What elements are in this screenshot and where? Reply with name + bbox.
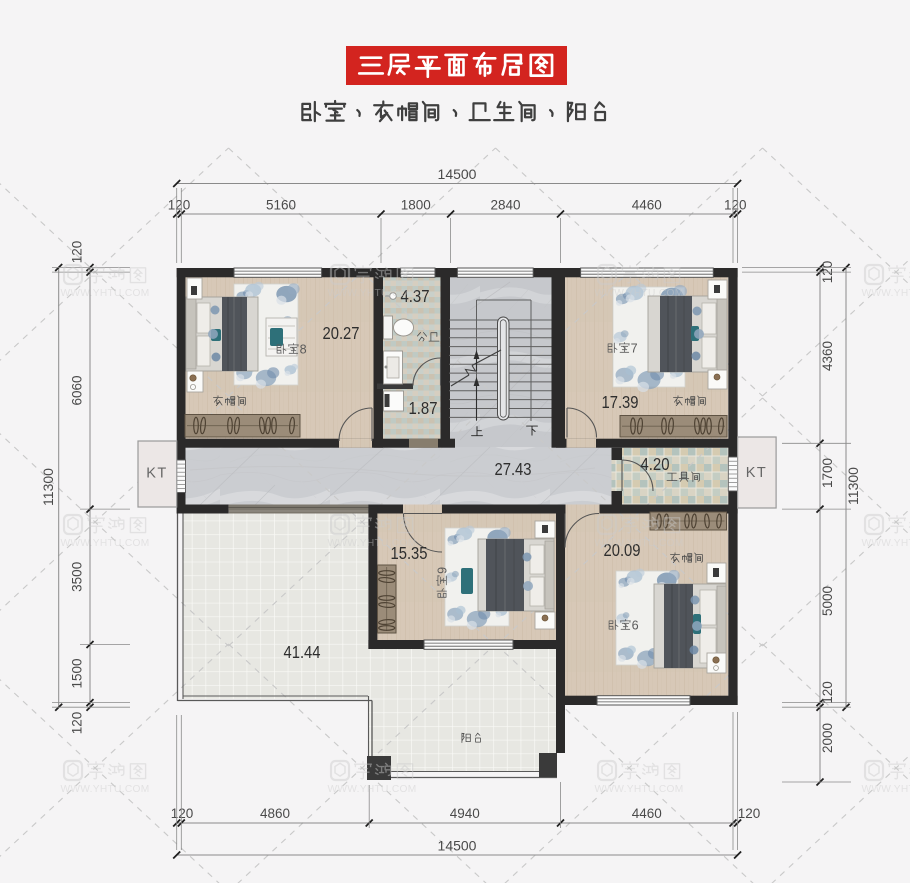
svg-text:2000: 2000 [820, 723, 835, 753]
svg-text:KT: KT [146, 466, 168, 482]
svg-text:3500: 3500 [70, 562, 85, 592]
svg-text:4360: 4360 [820, 341, 835, 371]
svg-text:1700: 1700 [820, 458, 835, 488]
svg-text:4460: 4460 [632, 198, 662, 213]
svg-text:120: 120 [738, 806, 761, 821]
svg-text:1500: 1500 [70, 658, 85, 688]
svg-text:17.39: 17.39 [602, 392, 639, 412]
svg-text:27.43: 27.43 [495, 459, 532, 479]
svg-text:41.44: 41.44 [284, 642, 321, 662]
svg-text:5160: 5160 [266, 198, 296, 213]
svg-text:11300: 11300 [845, 467, 861, 505]
svg-text:WWW.YHTU.COM: WWW.YHTU.COM [861, 784, 910, 795]
svg-text:8: 8 [300, 343, 307, 357]
svg-text:120: 120 [70, 712, 85, 735]
svg-text:14500: 14500 [438, 838, 477, 854]
svg-text:6: 6 [632, 619, 639, 633]
svg-text:WWW.YHTU.COM: WWW.YHTU.COM [60, 288, 149, 299]
svg-text:9: 9 [436, 567, 450, 574]
svg-text:4.20: 4.20 [641, 454, 670, 474]
svg-text:WWW.YHTU.COM: WWW.YHTU.COM [60, 784, 149, 795]
svg-text:20.27: 20.27 [323, 323, 360, 343]
svg-text:4460: 4460 [632, 806, 662, 821]
svg-text:WWW.YHTU.COM: WWW.YHTU.COM [594, 288, 683, 299]
svg-text:6060: 6060 [70, 375, 85, 405]
svg-text:WWW.YHTU.COM: WWW.YHTU.COM [327, 784, 416, 795]
svg-text:4860: 4860 [260, 806, 290, 821]
svg-text:WWW.YHTU.COM: WWW.YHTU.COM [594, 538, 683, 549]
svg-text:1.87: 1.87 [409, 398, 438, 418]
svg-text:7: 7 [631, 342, 638, 356]
svg-text:120: 120 [724, 198, 747, 213]
svg-text:WWW.YHTU.COM: WWW.YHTU.COM [861, 538, 910, 549]
svg-text:1800: 1800 [401, 198, 431, 213]
svg-text:2840: 2840 [490, 198, 520, 213]
svg-text:14500: 14500 [438, 166, 477, 182]
svg-text:WWW.YHTU.COM: WWW.YHTU.COM [60, 538, 149, 549]
svg-text:120: 120 [820, 681, 835, 704]
svg-text:WWW.YHTU.COM: WWW.YHTU.COM [594, 784, 683, 795]
svg-text:4940: 4940 [450, 806, 480, 821]
svg-text:120: 120 [171, 806, 194, 821]
svg-text:120: 120 [168, 198, 191, 213]
svg-text:KT: KT [746, 465, 768, 481]
svg-text:11300: 11300 [40, 468, 56, 506]
svg-text:120: 120 [70, 241, 85, 264]
svg-text:WWW.YHTU.COM: WWW.YHTU.COM [327, 288, 416, 299]
svg-text:WWW.YHTU.COM: WWW.YHTU.COM [327, 538, 416, 549]
svg-text:5000: 5000 [820, 586, 835, 616]
svg-text:WWW.YHTU.COM: WWW.YHTU.COM [861, 288, 910, 299]
